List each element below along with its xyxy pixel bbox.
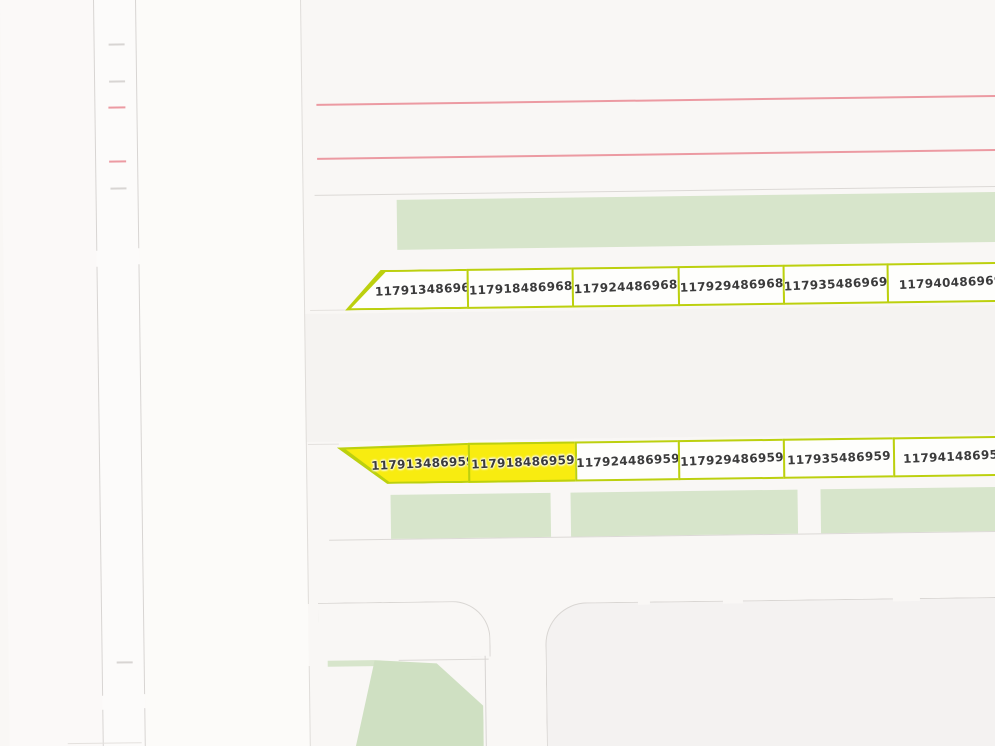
- parcel-label: 117941486959: [903, 448, 995, 465]
- parcel-label: 117924486959: [575, 452, 679, 469]
- parcel-row-top: 117913486968 117918486968 117924486968 1…: [345, 262, 995, 311]
- road-corner-outline: [318, 601, 491, 659]
- map-viewport[interactable]: 117913486968 117918486968 117924486968 1…: [0, 0, 995, 746]
- parcel-label: 117929486968: [679, 277, 783, 294]
- road-block-bottom-right: [545, 597, 995, 746]
- parcel-row-bottom: 117913486959 117918486959 117924486959 1…: [337, 436, 995, 485]
- parcel-cell[interactable]: 117913486959: [337, 443, 471, 485]
- parcel-cell[interactable]: 117929486959: [678, 439, 786, 480]
- parcel-cell[interactable]: 117913486968: [345, 269, 470, 311]
- parcel-label: 117929486959: [679, 451, 783, 468]
- parcel-label: 117913486968: [375, 281, 479, 298]
- boundary-line-pink: [317, 149, 995, 160]
- road-tick: [110, 187, 126, 189]
- boundary-line-pink-dash: [109, 160, 126, 162]
- vegetation-sliver: [328, 660, 375, 667]
- map-background-between-rows: [304, 305, 995, 442]
- vegetation-strip-top: [397, 192, 995, 250]
- parcel-cell[interactable]: 117924486959: [575, 440, 681, 481]
- road-edge-line: [399, 659, 489, 661]
- vegetation-patch: [391, 493, 552, 539]
- parcel-label: 117940486969: [898, 274, 995, 291]
- road-tick: [109, 80, 125, 82]
- boundary-stub-line: [308, 444, 339, 445]
- road-edge-line: [485, 656, 488, 746]
- boundary-line-pink: [316, 95, 995, 106]
- parcel-cell[interactable]: 117918486968: [467, 268, 575, 309]
- vegetation-polygon-bottom: [353, 658, 486, 746]
- parcel-label: 117918486968: [468, 280, 572, 297]
- map-background-left: [0, 0, 103, 746]
- road-tick: [117, 661, 133, 663]
- parcel-cell[interactable]: 117935486969: [783, 263, 890, 304]
- map-background-middle-block: [136, 0, 310, 746]
- vegetation-patch: [820, 487, 995, 534]
- parcel-cell[interactable]: 117935486959: [783, 437, 896, 478]
- parcel-label: 117935486969: [784, 276, 888, 293]
- boundary-stub-line: [310, 309, 348, 310]
- parcel-cell[interactable]: 117924486968: [572, 266, 681, 307]
- road-tick: [109, 43, 125, 45]
- parcel-cell[interactable]: 117918486959: [468, 441, 578, 482]
- parcel-label: 117935486959: [787, 450, 891, 467]
- parcel-label: 117913486959: [371, 455, 475, 472]
- map-layer: 117913486968 117918486968 117924486968 1…: [0, 0, 995, 746]
- road-line-gap: [638, 600, 650, 605]
- parcel-cell[interactable]: 117929486968: [678, 265, 786, 306]
- boundary-line-pink-dash: [108, 106, 125, 108]
- vegetation-patch: [570, 490, 798, 537]
- block-boundary-line: [309, 666, 311, 746]
- parcel-cell[interactable]: 117940486969: [887, 262, 995, 304]
- parcel-cell[interactable]: 117941486959: [893, 436, 995, 478]
- road-line-gap: [723, 598, 743, 603]
- parcel-label: 117924486968: [574, 278, 678, 295]
- parcel-label: 117918486959: [470, 454, 574, 471]
- road-line-gap: [893, 596, 920, 601]
